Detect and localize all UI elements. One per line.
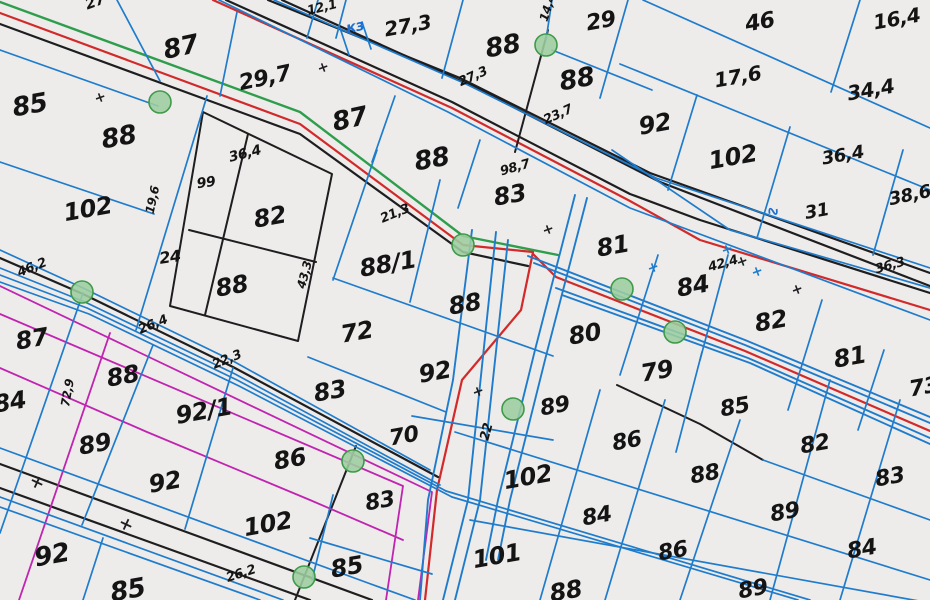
parcel-number-label: 80 bbox=[566, 317, 603, 350]
parcel-number-label: 34,4 bbox=[845, 74, 896, 106]
parcel-number-label: 83 bbox=[873, 463, 907, 493]
blue-boundary-line bbox=[540, 390, 600, 600]
parcel-number-label: 29,7 bbox=[237, 61, 295, 97]
parcel-number-label: 85 bbox=[10, 88, 50, 124]
parcel-number-label: 84 bbox=[845, 535, 879, 565]
parcel-number-label: 85 bbox=[718, 393, 752, 423]
parcel-number-label: 83 bbox=[491, 178, 528, 211]
parcel-number-label: 88 bbox=[557, 62, 597, 98]
distance-measurement-label: 14,4 bbox=[537, 0, 559, 23]
tree-marker bbox=[293, 566, 315, 588]
blue-boundary-line bbox=[420, 230, 472, 600]
tree-marker bbox=[611, 278, 633, 300]
parcel-number-label: 88/1 bbox=[357, 245, 418, 282]
cadastral-map-viewport[interactable]: +++++++++××8729,785881029982248887888388… bbox=[0, 0, 930, 600]
blue-boundary-line bbox=[676, 352, 702, 452]
blue-boundary-line bbox=[83, 538, 103, 600]
tree-marker bbox=[342, 450, 364, 472]
parcel-number-label: 102 bbox=[501, 459, 554, 495]
parcel-number-label: 88 bbox=[104, 359, 141, 392]
parcel-number-label: 29 bbox=[584, 7, 618, 37]
parcel-number-label: 88 bbox=[688, 460, 722, 490]
parcel-number-label: 31 bbox=[803, 199, 830, 224]
parcel-number-label: 87 bbox=[13, 322, 51, 355]
blue-boundary-line bbox=[831, 0, 860, 92]
parcel-number-label: 27,3 bbox=[382, 10, 433, 42]
blue-boundary-line bbox=[770, 380, 830, 600]
parcel-number-label: 88 bbox=[547, 574, 584, 600]
parcel-number-label: 87 bbox=[330, 101, 372, 138]
parcel-number-label: 46 bbox=[742, 8, 777, 38]
distance-measurement-label: 23,7 bbox=[541, 101, 576, 128]
parcel-number-label: 87 bbox=[161, 29, 203, 66]
survey-tick-mark: + bbox=[315, 59, 331, 78]
parcel-number-label: 92 bbox=[32, 538, 72, 574]
parcel-number-label: 89 bbox=[736, 575, 770, 600]
black-boundary-line bbox=[0, 464, 372, 600]
parcel-number-label: 102 bbox=[706, 139, 759, 175]
parcel-number-label: 70 bbox=[387, 422, 421, 452]
parcel-number-label: 84 bbox=[580, 502, 614, 532]
survey-tick-mark: + bbox=[540, 221, 556, 240]
blue-boundary-line bbox=[442, 0, 463, 78]
parcel-number-label: 88 bbox=[213, 269, 250, 302]
parcel-number-label: 88 bbox=[483, 29, 523, 65]
map-canvas[interactable]: +++++++++××8729,785881029982248887888388… bbox=[0, 0, 930, 600]
parcel-number-label: 79 bbox=[638, 354, 675, 387]
survey-tick-mark: + bbox=[92, 89, 108, 108]
parcel-number-label: 102 bbox=[241, 506, 294, 542]
survey-tick-mark: + bbox=[749, 263, 765, 282]
parcel-number-label: 82 bbox=[798, 430, 832, 460]
distance-measurement-label: 22,3 bbox=[210, 347, 244, 372]
parcel-number-label: 86 bbox=[271, 442, 308, 475]
blue-boundary-line bbox=[562, 295, 930, 444]
blue-boundary-line bbox=[458, 140, 480, 208]
parcel-number-label: 73 bbox=[907, 373, 930, 403]
parcel-number-label: 81 bbox=[831, 340, 868, 373]
tree-marker bbox=[452, 234, 474, 256]
parcel-number-label: 17,6 bbox=[712, 60, 763, 92]
parcel-number-label: 85 bbox=[108, 573, 148, 600]
parcel-number-label: 101 bbox=[470, 538, 523, 574]
parcel-number-label: 92 bbox=[636, 107, 673, 140]
parcel-number-label: 89 bbox=[76, 427, 113, 460]
parcel-number-label: 92 bbox=[416, 355, 453, 388]
survey-tick-mark: + bbox=[645, 259, 661, 278]
tree-marker bbox=[535, 34, 557, 56]
parcel-number-label: 83 bbox=[311, 374, 348, 407]
parcel-number-label: 89 bbox=[538, 392, 572, 422]
distance-measurement-label: 19,6 bbox=[143, 185, 162, 215]
black-boundary-line bbox=[189, 230, 316, 262]
parcel-number-label: 81 bbox=[594, 229, 631, 262]
survey-tick-mark: + bbox=[789, 281, 805, 300]
parcel-number-label: 86 bbox=[656, 537, 690, 567]
survey-tick-mark: + bbox=[470, 383, 486, 402]
parcel-number-label: 84 bbox=[0, 385, 28, 418]
parcel-number-label: 89 bbox=[768, 498, 802, 528]
parcel-number-label: 92/1 bbox=[173, 392, 234, 429]
parcel-number-label: 88 bbox=[412, 142, 452, 178]
parcel-number-label: 16,4 bbox=[871, 3, 922, 35]
blue-boundary-line bbox=[840, 400, 900, 600]
parcel-number-label: 82 bbox=[251, 200, 288, 233]
parcel-number-label: 84 bbox=[674, 269, 711, 302]
parcel-number-label: 86 bbox=[610, 427, 644, 457]
survey-tick-mark: × bbox=[27, 471, 46, 493]
distance-measurement-label: 98,7 bbox=[498, 156, 532, 179]
distance-measurement-label: 72,9 bbox=[58, 378, 77, 408]
parcel-number-label: 24 bbox=[158, 246, 182, 268]
parcel-number-label: 83 bbox=[363, 487, 397, 517]
parcel-number-label: 88 bbox=[446, 287, 483, 320]
blue-boundary-line bbox=[220, 12, 237, 96]
tree-marker bbox=[502, 398, 524, 420]
parcel-number-label: 72 bbox=[338, 315, 375, 348]
parcel-number-label: 82 bbox=[752, 304, 789, 337]
distance-measurement-label: 21,3 bbox=[378, 201, 412, 226]
parcel-number-label: 92 bbox=[146, 465, 183, 498]
tree-marker bbox=[71, 281, 93, 303]
distance-measurement-label: 26,2 bbox=[224, 562, 258, 586]
parcel-number-label: 85 bbox=[328, 550, 365, 583]
parcel-number-label: 99 bbox=[196, 174, 217, 193]
distance-measurement-label: 36,4 bbox=[227, 142, 262, 165]
distance-measurement-label: 12,1 bbox=[306, 0, 339, 19]
tree-marker bbox=[664, 321, 686, 343]
distance-measurement-label: 27 bbox=[82, 0, 108, 13]
distance-measurement-label: 22 bbox=[478, 421, 497, 442]
distance-measurement-label: 36,3 bbox=[873, 255, 906, 278]
parcel-number-label: 102 bbox=[61, 191, 114, 227]
blue-boundary-line bbox=[668, 95, 697, 190]
tree-marker bbox=[149, 91, 171, 113]
parcel-number-label: 36,4 bbox=[820, 141, 865, 169]
parcel-number-label: 88 bbox=[99, 120, 139, 156]
handwritten-annotation: кз bbox=[344, 16, 366, 37]
